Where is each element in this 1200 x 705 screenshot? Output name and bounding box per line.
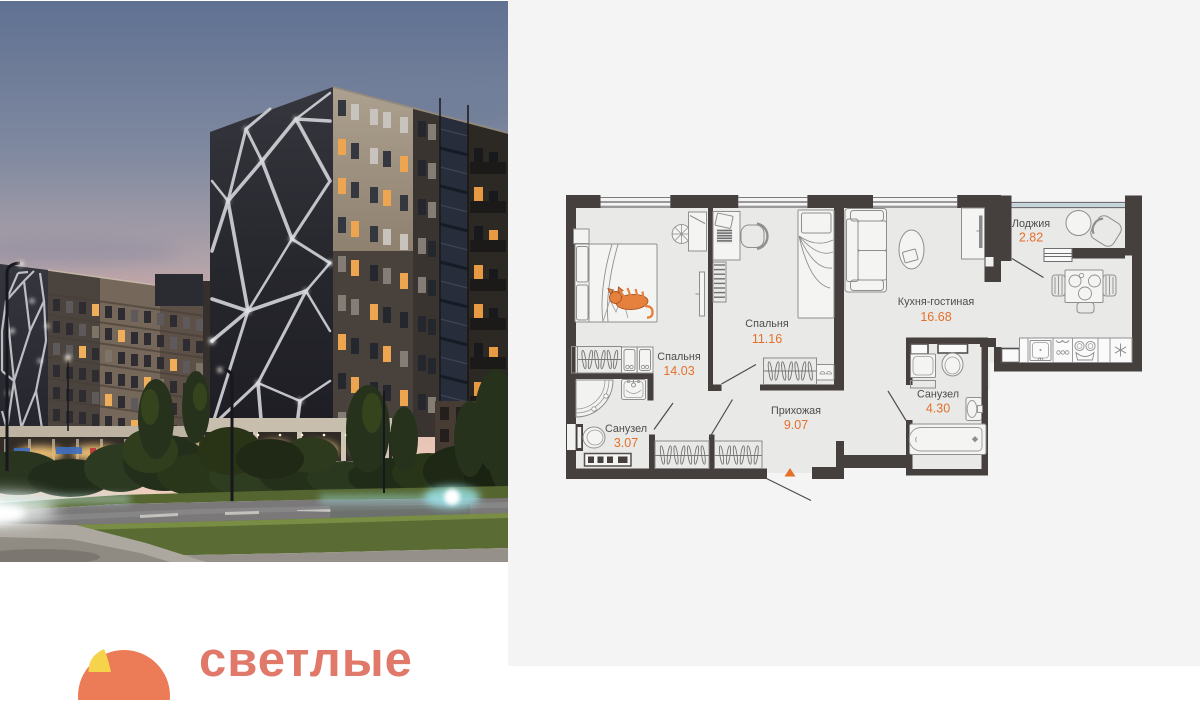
svg-text:светлые: светлые: [199, 640, 413, 687]
svg-text:Прихожая: Прихожая: [771, 405, 821, 417]
svg-text:Спальня: Спальня: [745, 318, 789, 330]
svg-text:4.30: 4.30: [926, 402, 950, 416]
svg-text:3.07: 3.07: [614, 436, 638, 450]
svg-text:11.16: 11.16: [752, 332, 782, 346]
svg-text:14.03: 14.03: [663, 364, 694, 378]
svg-text:Санузел: Санузел: [605, 423, 647, 435]
svg-text:Лоджия: Лоджия: [1012, 218, 1050, 230]
svg-text:2.82: 2.82: [1019, 231, 1043, 245]
svg-text:Санузел: Санузел: [917, 389, 959, 401]
svg-text:Спальня: Спальня: [657, 351, 701, 363]
svg-text:16.68: 16.68: [920, 310, 951, 324]
svg-text:9.07: 9.07: [784, 418, 808, 432]
svg-text:Кухня-гостиная: Кухня-гостиная: [898, 296, 975, 308]
